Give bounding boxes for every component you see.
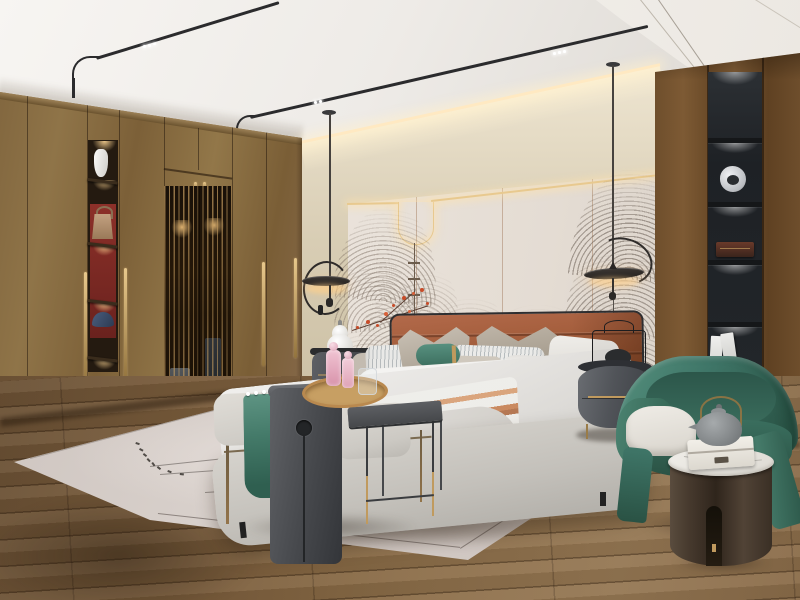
- track-light-dot: [143, 45, 146, 48]
- pendant-under-glow: [306, 284, 346, 294]
- upper-cabinet-seam: [198, 128, 199, 170]
- pink-decanter: [342, 358, 354, 388]
- glass-cup: [358, 368, 377, 395]
- shelf-wood-box: [716, 242, 754, 257]
- track-light-dot: [319, 100, 322, 103]
- track-light-dot: [563, 50, 566, 53]
- nightstand-leg: [586, 424, 588, 439]
- blossom: [412, 292, 415, 295]
- drum-brass-pin: [712, 544, 716, 552]
- pendant-lamp-left: [290, 105, 360, 320]
- teapot-body: [696, 412, 742, 446]
- waterfall-table-body: [270, 388, 342, 564]
- sculpture-hole: [727, 175, 739, 185]
- wardrobe-handle: [84, 272, 87, 386]
- display-niche-column: [88, 140, 118, 372]
- decanter-stopper: [329, 342, 338, 351]
- decanter-stopper: [344, 351, 352, 359]
- lantern-handle: [604, 320, 634, 333]
- decor-bead: [254, 391, 258, 395]
- table-leg: [440, 414, 442, 490]
- shelf-sculpture: [720, 166, 746, 192]
- shelf-led-glow: [708, 143, 762, 157]
- track-light-dot: [148, 44, 151, 47]
- wardrobe-handle: [124, 268, 127, 380]
- track-light-dot: [553, 52, 556, 55]
- blossom: [420, 288, 424, 292]
- pendant-cord: [329, 113, 330, 281]
- box-lid-seam: [688, 448, 754, 454]
- handbag: [92, 214, 113, 239]
- table-stretcher: [366, 494, 434, 501]
- bench-leg: [226, 444, 229, 524]
- pendant-knob: [609, 292, 616, 300]
- track-light-dot: [558, 51, 561, 54]
- box-label: [714, 457, 728, 464]
- box-brass-line: [720, 248, 750, 249]
- drum-slot-cutout: [706, 506, 722, 566]
- white-vase: [94, 149, 108, 177]
- table-circle-cutout: [296, 420, 312, 436]
- table-slit: [303, 436, 306, 562]
- track-rail-left-drop: [72, 78, 75, 98]
- bolster-brass-band: [452, 345, 457, 363]
- track-light-dot: [153, 43, 156, 46]
- metal-side-table: [340, 396, 450, 536]
- drum-table-group: [660, 390, 785, 585]
- decor-bead: [246, 392, 250, 396]
- pink-decanter: [326, 350, 341, 386]
- pendant-stem: [329, 285, 331, 299]
- pendant-under-glow: [589, 277, 639, 287]
- shelf-led-glow: [708, 207, 762, 221]
- track-light-dot: [314, 101, 317, 104]
- shelf-column: [708, 72, 762, 378]
- table-top: [347, 400, 442, 427]
- bed-leg: [600, 492, 606, 506]
- bedroom-photo: [0, 0, 800, 600]
- shelf-led-glow: [708, 72, 762, 90]
- table-leg: [382, 418, 384, 496]
- shelf-led-glow: [708, 265, 762, 279]
